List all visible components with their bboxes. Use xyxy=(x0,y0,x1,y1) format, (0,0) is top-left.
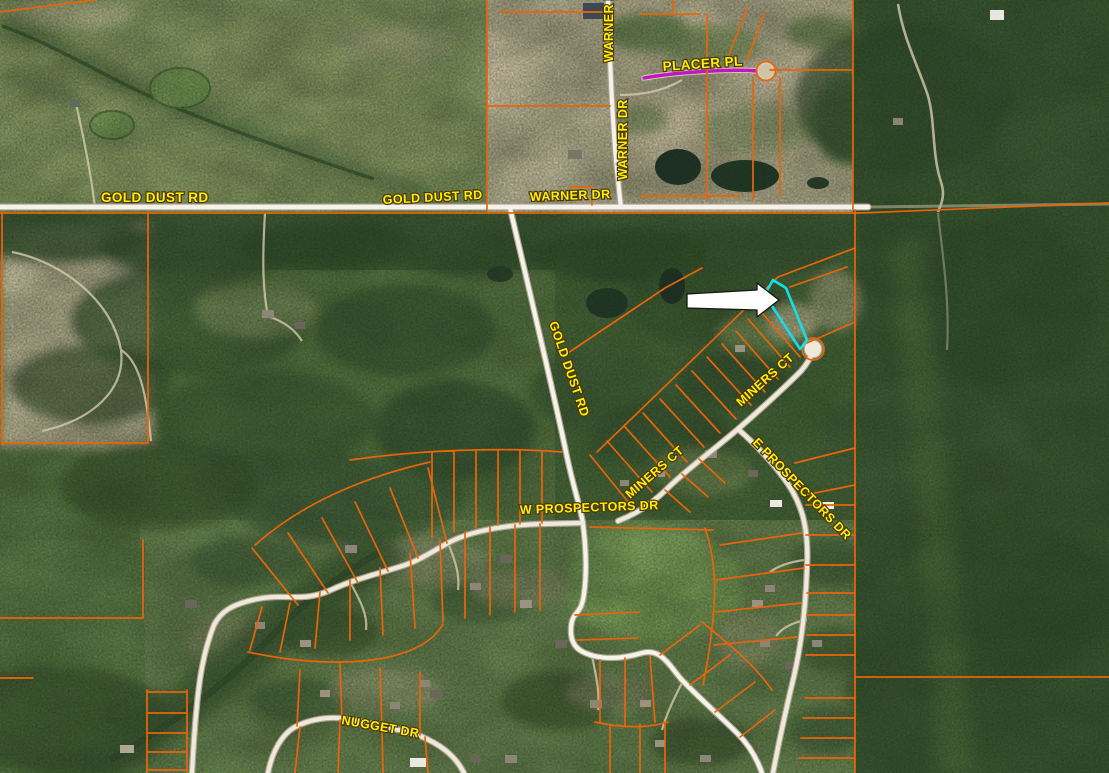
map-viewport[interactable]: GOLD DUST RD GOLD DUST RD WARNER DR WARN… xyxy=(0,0,1109,773)
road-label-gold-dust-rd-west: GOLD DUST RD xyxy=(101,190,209,205)
placer-pl-culdesac xyxy=(758,63,774,79)
satellite-map[interactable]: GOLD DUST RD GOLD DUST RD WARNER DR WARN… xyxy=(0,0,1109,773)
road-label-warner-dr-vert: WARNER DR xyxy=(616,99,630,180)
road-label-warner-dr-top: WARNER DR xyxy=(602,0,616,62)
road-label-warner-dr-horiz: WARNER DR xyxy=(530,187,611,204)
